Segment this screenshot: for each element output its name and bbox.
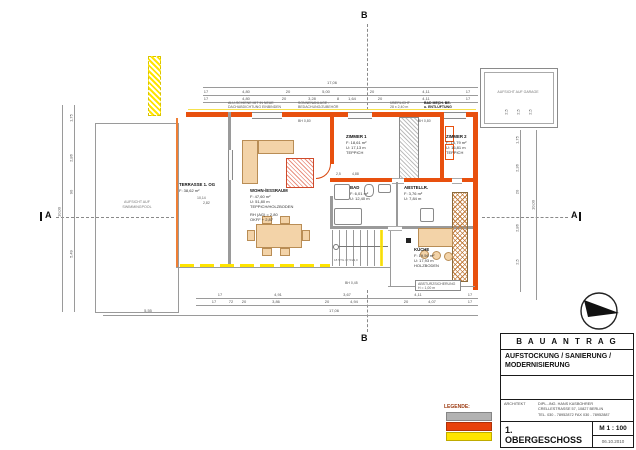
right-dim-line-total — [536, 130, 537, 300]
wall-left-existing — [228, 112, 231, 268]
wall-interior-existing — [396, 182, 398, 226]
demolition-chimney — [148, 56, 161, 116]
north-arrow-icon — [578, 288, 622, 334]
legend-swatch-abbruch — [446, 432, 492, 441]
dim-label: 10,14 — [197, 196, 206, 200]
room-area: F: 38,62 m² — [179, 188, 215, 193]
door-opening — [388, 226, 402, 231]
room-area: F: 16,79 m² — [446, 140, 467, 145]
left-dim-line-total — [62, 105, 63, 312]
title-block-bottom-row: 1. OBERGESCHOSS M 1 : 100 06.10.2010 — [501, 422, 633, 447]
window — [348, 112, 372, 119]
bathtub — [334, 208, 362, 225]
legend-title: LEGENDE: — [444, 404, 470, 410]
architect-phone: TEL. 030 - 78952872 FAX 030 - 78952887 — [538, 413, 631, 418]
demolition-stair-strip — [380, 230, 383, 266]
chair — [302, 230, 310, 241]
wall-interior-new — [440, 117, 444, 178]
title-block-architect-row: ARCHITEKT DIPL.-ING. HANS KASBOHRER CREL… — [501, 400, 633, 422]
dim-label: 2,36 — [515, 164, 520, 172]
terrace-left-edge — [176, 118, 178, 268]
sheet-title: 1. OBERGESCHOSS — [501, 422, 592, 447]
washer — [420, 208, 434, 222]
smoke-detector-icon — [406, 238, 411, 243]
wall-right-new — [473, 112, 478, 290]
chair — [262, 248, 272, 256]
drawing-scale: M 1 : 100 — [593, 422, 633, 436]
section-marker-a-right: A — [571, 210, 578, 220]
dim-label: 20 — [404, 299, 408, 304]
dim-label: 17 — [466, 89, 470, 94]
terrace-label: TERRASSE 1. OG F: 38,62 m² — [179, 182, 215, 193]
room-label-abstellraum: ABSTELLR. F: 3,76 m² U: 7,84 m — [404, 185, 428, 201]
dim-label: 17,06 — [327, 80, 337, 85]
pool-label: AUFSICHT AUF SWIMMINGPOOL — [108, 200, 166, 210]
room-area: F: 18,61 m² — [346, 140, 367, 145]
dim-label: 4,91 — [274, 292, 282, 297]
section-line-b-top — [367, 24, 368, 110]
kitchen-counter — [242, 140, 258, 184]
kitchen-island — [418, 228, 453, 247]
dim-label-new: 4,88 — [352, 172, 359, 176]
section-tick-a-right — [579, 212, 581, 221]
dim-label-new: 2,5 — [336, 172, 341, 176]
dim-label: 20 — [515, 190, 520, 194]
section-marker-b-top: B — [361, 10, 368, 20]
stair-walkline-start — [333, 244, 339, 250]
room-floor: TEPPICH/HOLZBODEN — [250, 204, 293, 209]
garage-label: AUFSICHT AUF GARAGE — [484, 90, 552, 94]
chair — [247, 230, 255, 241]
demolition-strip-bottom — [180, 264, 330, 267]
dim-label: 20 — [286, 89, 290, 94]
dim-label: 10,00 — [57, 207, 62, 217]
room-floor: HOLZBODEN — [414, 263, 439, 268]
dim-label: 2,86 — [69, 154, 74, 162]
door-opening — [452, 178, 462, 184]
dim-label: 17 — [204, 96, 208, 101]
window — [228, 150, 233, 180]
architect-info: DIPL.-ING. HANS KASBOHRER CRELLESTRASSE … — [538, 400, 633, 421]
section-line-b-bottom — [367, 290, 368, 332]
dim-label: 17 — [218, 292, 222, 297]
dining-table — [256, 224, 302, 248]
section-tick-a-left — [40, 212, 42, 221]
dim-label: 1,75 — [69, 114, 74, 122]
section-marker-b-bottom: B — [361, 333, 368, 343]
new-floor-hatch — [286, 158, 314, 188]
dim-label: 2,82 — [203, 201, 210, 205]
room-label-kueche: KÜCHE F: 19,56 m² U: 17,93 m HOLZBODEN — [414, 247, 439, 268]
room-label-zimmer2: ZIMMER 2 F: 16,79 m² U: 16,81 m TEPPICH — [446, 134, 467, 155]
architect-label: ARCHITEKT — [501, 400, 538, 421]
bottom-dim-line-total — [103, 315, 478, 316]
room-perimeter: U: 7,84 m — [404, 196, 428, 201]
dim-label: 3,86 — [272, 299, 280, 304]
dim-label: 20 — [282, 96, 286, 101]
sill-height-label: BH 0,80 — [418, 119, 431, 123]
section-marker-a-left: A — [45, 210, 52, 220]
dim-label: 1,64 — [348, 96, 356, 101]
dim-label: 4,11 — [414, 292, 422, 297]
top-dim-line-total — [203, 87, 478, 88]
stair-label: 18 STG 17,5/29,0 — [334, 259, 358, 263]
dim-label: 20 — [370, 89, 374, 94]
shower — [334, 184, 350, 200]
room-floor: TEPPICH — [346, 150, 367, 155]
masonry-pillar-new — [452, 192, 468, 282]
room-label-bad: BAD F: 6,01 m² U: 12,40 m — [350, 185, 370, 201]
right-dim-line — [520, 130, 521, 292]
dim-label: 2,5 — [515, 259, 520, 265]
pool-label-line2: SWIMMINGPOOL — [108, 205, 166, 210]
wall-interior-new — [330, 117, 334, 164]
chair — [280, 248, 290, 256]
room-name: ZIMMER 1 — [346, 134, 367, 140]
dim-label: 2,5 — [504, 109, 509, 115]
kitchen-left-line — [390, 228, 391, 286]
roof-edge-line — [188, 109, 476, 110]
dim-label: 72 — [229, 299, 233, 304]
wall-interior-existing — [330, 196, 333, 228]
dim-label: 4,07 — [428, 299, 436, 304]
dim-label: 2,5 — [528, 109, 533, 115]
room-name: ABSTELLR. — [404, 185, 428, 191]
dim-label: 5,00 — [322, 89, 330, 94]
dim-label: 10,00 — [531, 200, 536, 210]
sink — [378, 184, 391, 193]
legend-swatch-bestand — [446, 412, 492, 421]
sill-height-label: BH 0,45 — [345, 281, 358, 285]
room-name: WOHN-/ESSRAUM — [250, 188, 293, 194]
dim-label: 17 — [466, 96, 470, 101]
dim-label: 2,86 — [515, 224, 520, 232]
room-name: ZIMMER 2 — [446, 134, 467, 140]
bottom-dim-line-2 — [196, 305, 478, 306]
dim-label: 20 — [242, 299, 246, 304]
dim-label: 4,11 — [422, 89, 430, 94]
title-block: B A U A N T R A G AUFSTOCKUNG / SANIERUN… — [500, 333, 634, 448]
room-floor: TEPPICH — [446, 150, 467, 155]
window — [252, 112, 282, 119]
scale-date-cell: M 1 : 100 06.10.2010 — [592, 422, 633, 447]
room-label-zimmer1: ZIMMER 1 F: 18,61 m² U: 17,13 m TEPPICH — [346, 134, 367, 155]
legend-swatch-neu — [446, 422, 492, 431]
dim-label: 4,80 — [242, 89, 250, 94]
door-opening — [392, 178, 404, 184]
annotation-line: H = 1,00 m — [418, 286, 458, 290]
dim-label: 17 — [212, 299, 216, 304]
garage-outline-inner — [484, 72, 554, 124]
door-swing — [316, 164, 331, 179]
dim-label: 17 — [204, 89, 208, 94]
shaft-existing — [399, 117, 419, 180]
dim-label: 4,94 — [350, 299, 358, 304]
dim-label: 5,49 — [69, 250, 74, 258]
pool-outline — [95, 123, 179, 313]
room-name: TERRASSE 1. OG — [179, 182, 215, 188]
room-level: OKFF + 2,87 — [250, 217, 293, 222]
dim-label: 17 — [468, 292, 472, 297]
dim-label: 5,55 — [144, 308, 152, 313]
section-line-a-right — [482, 217, 568, 218]
wall-bottom-line — [176, 267, 390, 268]
room-label-wohn: WOHN-/ESSRAUM F: 47,60 m² U: 51,80 m TEP… — [250, 188, 293, 223]
window — [444, 112, 466, 119]
drawing-date: 06.10.2010 — [593, 436, 633, 447]
room-perimeter: U: 12,40 m — [350, 196, 370, 201]
dim-label: 2,5 — [516, 109, 521, 115]
guardrail-note-box: ABSTURZSICHERUNG H = 1,00 m — [415, 280, 461, 291]
room-area: F: 6,01 m² — [350, 191, 370, 196]
dim-label: 17,06 — [329, 308, 339, 313]
dim-label: 17 — [468, 299, 472, 304]
stool — [444, 252, 453, 261]
title-block-header: B A U A N T R A G — [501, 334, 633, 350]
dim-label: 20 — [325, 299, 329, 304]
dim-label: 3,67 — [343, 292, 351, 297]
title-block-project: AUFSTOCKUNG / SANIERUNG / MODERNISIERUNG — [501, 350, 633, 376]
title-block-spacer — [501, 376, 633, 400]
left-dim-line — [74, 105, 75, 312]
kitchen-counter — [258, 140, 294, 154]
dim-label: 90 — [69, 190, 74, 194]
sill-height-label: BH 0,80 — [298, 119, 311, 123]
dim-label: 1,75 — [515, 136, 520, 144]
drawing-sheet: B B A A AUFSICHT AUF SWIMMINGPOOL 1,75 2… — [0, 0, 636, 450]
dim-label: 20 — [378, 96, 382, 101]
